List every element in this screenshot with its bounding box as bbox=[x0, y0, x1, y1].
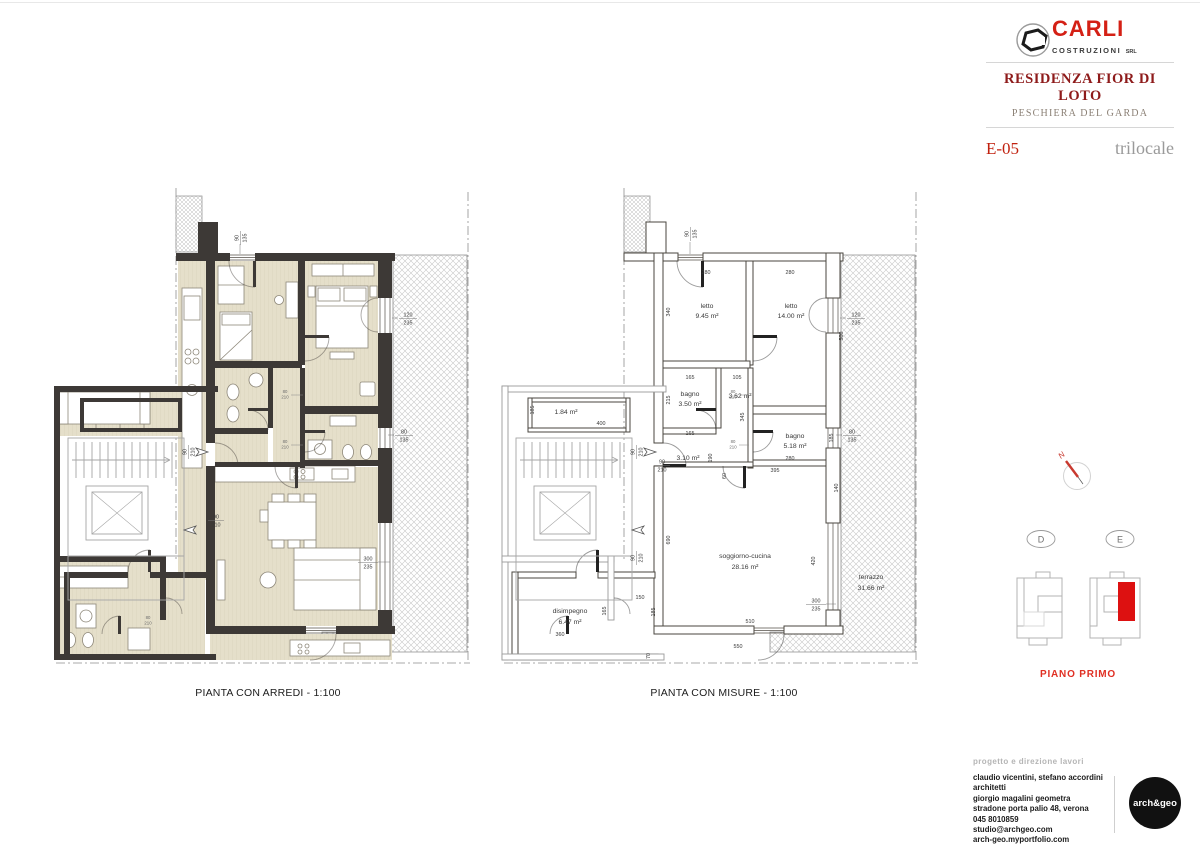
dim-window: 235 bbox=[852, 321, 861, 327]
dim: 280 bbox=[786, 456, 795, 462]
dim: 280 bbox=[702, 270, 711, 276]
credit-line: studio@archgeo.com bbox=[973, 825, 1111, 835]
credit-line: claudio vicentini, stefano accordini arc… bbox=[973, 773, 1111, 794]
misure-windows bbox=[678, 255, 838, 633]
divider bbox=[986, 62, 1174, 63]
dim-door-tag: 80 bbox=[283, 439, 288, 444]
room-name: letto bbox=[701, 303, 714, 310]
dim: 150 bbox=[636, 595, 645, 601]
dim-door-tag: 210 bbox=[729, 395, 737, 400]
dim: 70 bbox=[646, 653, 652, 659]
keyplan: N D E bbox=[1017, 450, 1140, 645]
dim: 215 bbox=[666, 396, 672, 405]
misure-walls bbox=[512, 222, 843, 660]
dim-door: 90 bbox=[631, 449, 637, 455]
credit-line: stradone porta palio 48, verona bbox=[973, 804, 1111, 814]
dim-door: 210 bbox=[639, 448, 645, 457]
dim-door-tag: 210 bbox=[281, 395, 289, 400]
dim: 550 bbox=[734, 644, 743, 650]
dim-window: 90 bbox=[685, 231, 691, 237]
drawing-sheet: 90 135 120 235 80 135 300 235 90 210 bbox=[0, 0, 1200, 848]
dim: 165 bbox=[686, 375, 695, 381]
dim-door-tag: 210 bbox=[144, 621, 152, 626]
dim: 395 bbox=[771, 468, 780, 474]
room-name: bagno bbox=[786, 433, 805, 440]
dim-door: 210 bbox=[658, 468, 667, 474]
footer-label: progetto e direzione lavori bbox=[973, 757, 1084, 766]
unit-highlight bbox=[1118, 582, 1135, 621]
misure-entry-arrow bbox=[644, 448, 656, 456]
credit-line: arch-geo.myportfolio.com bbox=[973, 835, 1111, 845]
dim: 165 bbox=[602, 607, 608, 616]
dim-door-tag: 80 bbox=[283, 389, 288, 394]
dim-window: 120 bbox=[404, 313, 413, 319]
credit-line: 045 8010859 bbox=[973, 815, 1111, 825]
dim-door: 90 bbox=[659, 460, 665, 466]
caption-arredi: PIANTA CON ARREDI - 1:100 bbox=[158, 687, 378, 699]
dim: 185 bbox=[651, 608, 657, 617]
dim: 165 bbox=[686, 431, 695, 437]
dim-window: 135 bbox=[243, 234, 249, 243]
dim-window: 235 bbox=[364, 565, 373, 571]
dim: 185 bbox=[530, 406, 536, 415]
keyplan-building-e: E bbox=[1090, 531, 1140, 646]
room-name: letto bbox=[785, 303, 798, 310]
room-area: 28.16 m² bbox=[732, 564, 760, 571]
dim-door: 90 bbox=[183, 449, 189, 455]
residence-location: PESCHIERA DEL GARDA bbox=[986, 108, 1174, 119]
dim: 105 bbox=[733, 375, 742, 381]
dim: 500 bbox=[839, 332, 845, 341]
dim: 345 bbox=[740, 413, 746, 422]
residence-title: RESIDENZA FIOR DI LOTO bbox=[986, 71, 1174, 105]
footer-divider bbox=[1114, 776, 1115, 833]
dim: 360 bbox=[556, 632, 565, 638]
dim-door-tag: 80 bbox=[731, 389, 736, 394]
dim-window: 300 bbox=[812, 599, 821, 605]
room-area: 1.84 m² bbox=[554, 409, 578, 416]
plan-arredi: 90 135 120 235 80 135 300 235 90 210 bbox=[54, 188, 470, 663]
brand-suffix: SRL bbox=[1126, 49, 1137, 55]
dim-door-tag: 210 bbox=[281, 445, 289, 450]
footer-credits: claudio vicentini, stefano accordini arc… bbox=[973, 773, 1111, 846]
dim: 190 bbox=[708, 454, 714, 463]
misure-neighbor-walls bbox=[502, 386, 666, 660]
room-area: 3.10 m² bbox=[676, 455, 700, 462]
dim-window: 80 bbox=[401, 430, 407, 436]
unit-type: trilocale bbox=[1115, 138, 1174, 159]
dim-window: 80 bbox=[849, 430, 855, 436]
carli-logo: CARLI COSTRUZIONI SRL bbox=[986, 14, 1174, 62]
dim-window: 135 bbox=[848, 438, 857, 444]
dim-window: 135 bbox=[400, 438, 409, 444]
room-area: 9.45 m² bbox=[695, 313, 719, 320]
dim: 420 bbox=[811, 557, 817, 566]
building-label-d: D bbox=[1038, 535, 1045, 545]
room-name: disimpegno bbox=[553, 608, 588, 615]
unit-code: E-05 bbox=[986, 139, 1019, 159]
misure-entry-arrow-2 bbox=[632, 526, 644, 534]
brand-subtitle: COSTRUZIONI bbox=[1052, 46, 1121, 55]
dim-door: 210 bbox=[639, 554, 645, 563]
north-label: N bbox=[1057, 450, 1067, 461]
dim: 280 bbox=[786, 270, 795, 276]
room-area: 5.18 m² bbox=[783, 443, 807, 450]
credit-line: giorgio magalini geometra bbox=[973, 794, 1111, 804]
dim: 400 bbox=[597, 421, 606, 427]
plan-misure: letto 9.45 m² letto 14.00 m² bagno 3.50 … bbox=[502, 188, 918, 663]
dim-window: 135 bbox=[693, 230, 699, 239]
dim-door: 90 bbox=[631, 555, 637, 561]
archgeo-logo: arch&geo bbox=[1129, 777, 1181, 829]
room-name: terrazzo bbox=[859, 574, 884, 581]
title-block: CARLI COSTRUZIONI SRL RESIDENZA FIOR DI … bbox=[986, 14, 1174, 159]
room-area: 14.00 m² bbox=[778, 313, 806, 320]
dim: 60 bbox=[722, 473, 728, 479]
building-label-e: E bbox=[1117, 535, 1123, 545]
dim-door-tag: 80 bbox=[146, 615, 151, 620]
brand-name: CARLI bbox=[1052, 18, 1137, 40]
room-name: soggiorno-cucina bbox=[719, 553, 771, 560]
dim-door-tag: 80 bbox=[731, 439, 736, 444]
dim-window: 90 bbox=[235, 235, 241, 241]
archgeo-logo-text: arch&geo bbox=[1133, 798, 1177, 809]
north-compass-icon: N bbox=[1057, 450, 1091, 490]
keyplan-building-d: D bbox=[1017, 531, 1062, 646]
room-area: 3.50 m² bbox=[678, 401, 702, 408]
dim: 185 bbox=[829, 434, 835, 443]
dim-window: 235 bbox=[812, 607, 821, 613]
room-area: 6.47 m² bbox=[558, 619, 582, 626]
dim-window: 120 bbox=[852, 313, 861, 319]
dim-window: 235 bbox=[404, 321, 413, 327]
room-name: bagno bbox=[681, 391, 700, 398]
dim-door-tag: 210 bbox=[729, 445, 737, 450]
dim: 690 bbox=[666, 536, 672, 545]
dim-door: 90 bbox=[213, 515, 219, 521]
dim-window: 300 bbox=[364, 557, 373, 563]
floor-label: PIANO PRIMO bbox=[1008, 669, 1148, 680]
dim-door: 210 bbox=[191, 448, 197, 457]
divider bbox=[986, 127, 1174, 128]
dim: 510 bbox=[746, 619, 755, 625]
dim: 140 bbox=[834, 484, 840, 493]
caption-misure: PIANTA CON MISURE - 1:100 bbox=[614, 687, 834, 699]
dim-door: 210 bbox=[212, 523, 221, 529]
room-area: 31.66 m² bbox=[858, 585, 886, 592]
dim: 340 bbox=[666, 308, 672, 317]
